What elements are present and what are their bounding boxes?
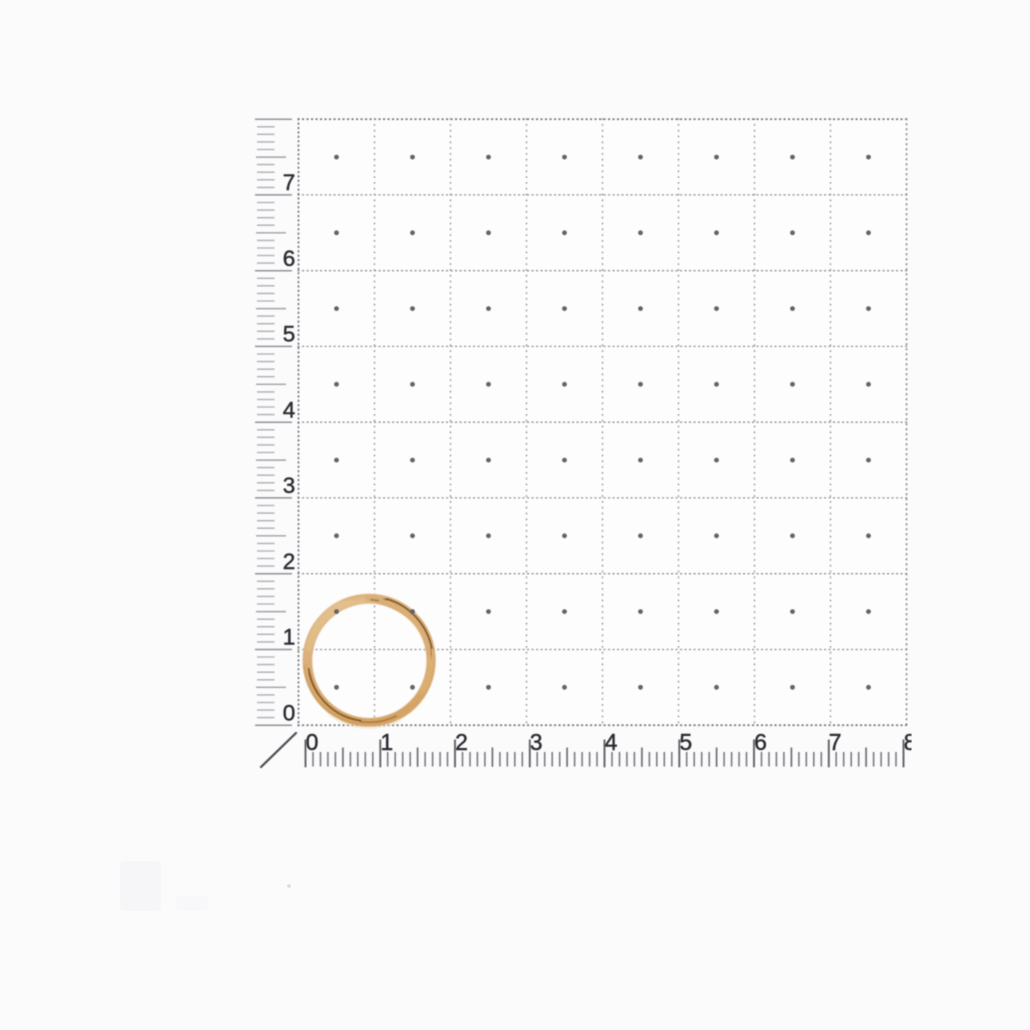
svg-text:5: 5 [679,729,692,755]
svg-text:2: 2 [455,729,468,755]
svg-text:6: 6 [754,729,767,755]
svg-text:2: 2 [283,549,296,574]
svg-text:0: 0 [283,700,296,725]
svg-text:3: 3 [283,473,296,498]
svg-text:5: 5 [283,322,296,347]
svg-text:0: 0 [306,729,319,755]
svg-text:3: 3 [530,729,543,755]
svg-text:7: 7 [283,170,296,195]
svg-text:4: 4 [283,397,296,422]
svg-text:1: 1 [283,625,296,650]
svg-text:1: 1 [380,729,393,755]
svg-text:7: 7 [829,729,842,755]
svg-text:6: 6 [283,246,296,271]
svg-text:4: 4 [605,729,618,755]
